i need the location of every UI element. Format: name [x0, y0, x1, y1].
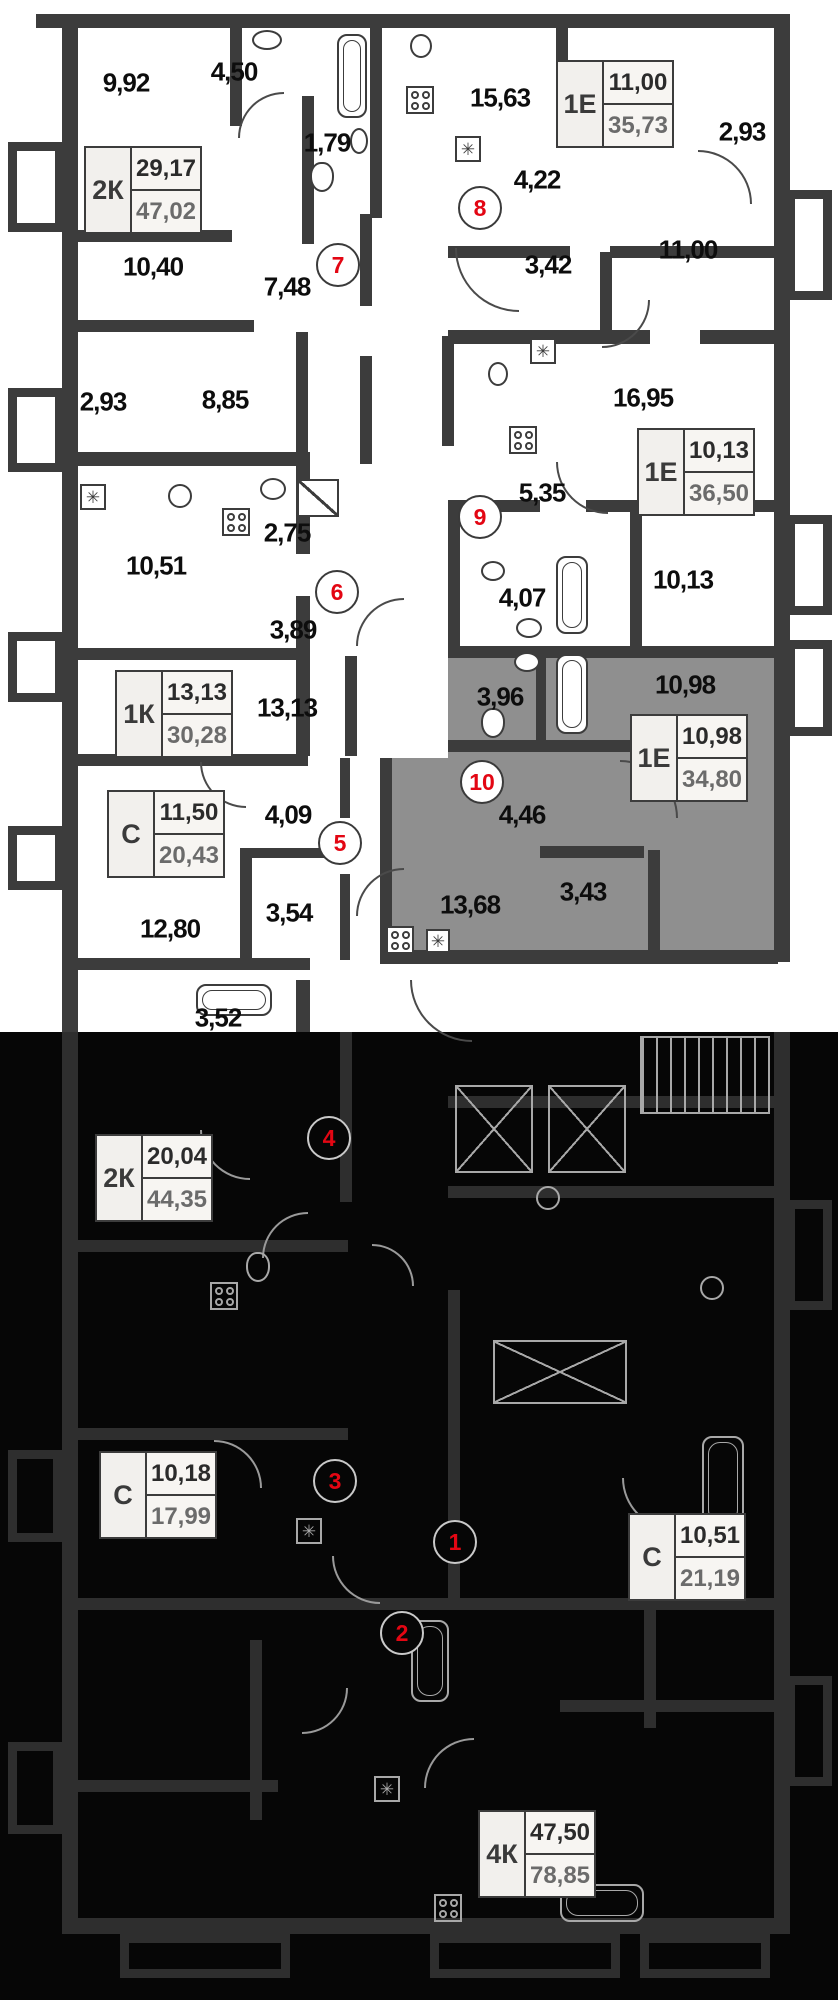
sink-icon — [410, 34, 432, 58]
door-arc-icon — [455, 248, 519, 312]
unit-rooms-area: 10,51 — [676, 1515, 744, 1558]
wall-segment — [36, 14, 790, 28]
washer-icon: ✳ — [296, 1518, 322, 1544]
unit-type-label: 4К — [480, 1812, 526, 1896]
unit-card-1Е-35,73[interactable]: 1Е11,0035,73 — [556, 60, 674, 148]
balcony — [786, 640, 832, 736]
wall-segment — [774, 14, 790, 962]
unit-rooms-area: 47,50 — [526, 1812, 594, 1855]
unit-rooms-area: 11,50 — [155, 792, 223, 835]
door-arc-icon — [698, 150, 752, 204]
entrance-marker-9[interactable]: 9 — [458, 495, 502, 539]
room-area-label: 4,22 — [514, 165, 561, 196]
balcony — [430, 1934, 620, 1978]
room-area-label: 10,13 — [653, 565, 713, 596]
sink-icon — [252, 30, 282, 50]
balcony — [8, 632, 64, 702]
unit-rooms-area: 11,00 — [604, 62, 672, 105]
toilet-icon — [481, 708, 505, 738]
unit-rooms-area: 10,18 — [147, 1453, 215, 1496]
room-area-label: 3,89 — [270, 615, 317, 646]
entrance-marker-6[interactable]: 6 — [315, 570, 359, 614]
unit-areas: 10,9834,80 — [678, 716, 746, 800]
stove-icon — [509, 426, 537, 454]
elevator-icon — [455, 1085, 533, 1173]
balcony — [8, 826, 64, 890]
wall-segment — [648, 850, 660, 952]
sink-icon — [700, 1276, 724, 1300]
unit-total-area: 34,80 — [678, 759, 746, 800]
wall-segment — [630, 512, 642, 648]
sink-icon — [488, 362, 508, 386]
unit-areas: 10,1336,50 — [685, 430, 753, 514]
wall-segment — [340, 1032, 352, 1202]
unit-areas: 11,5020,43 — [155, 792, 223, 876]
room-area-label: 3,42 — [525, 250, 572, 281]
unit-rooms-area: 13,13 — [163, 672, 231, 715]
door-arc-icon — [356, 868, 404, 916]
door-arc-icon — [356, 598, 404, 646]
wall-segment — [448, 1186, 778, 1198]
room-area-label: 4,07 — [499, 583, 546, 614]
room-area-label: 13,68 — [440, 890, 500, 921]
wall-segment — [360, 214, 372, 306]
room-area-label: 3,54 — [266, 898, 313, 929]
wall-segment — [448, 512, 460, 648]
unit-areas: 11,0035,73 — [604, 62, 672, 146]
room-area-label: 10,51 — [126, 551, 186, 582]
unit-areas: 10,5121,19 — [676, 1515, 744, 1599]
washer-icon: ✳ — [530, 338, 556, 364]
room-area-label: 3,43 — [560, 877, 607, 908]
sink-icon — [350, 128, 368, 154]
wall-segment — [62, 1032, 78, 1932]
stove-icon — [210, 1282, 238, 1310]
entrance-marker-8[interactable]: 8 — [458, 186, 502, 230]
unit-type-label: 1Е — [558, 62, 604, 146]
room-area-label: 4,50 — [211, 57, 258, 88]
balcony — [640, 1934, 770, 1978]
room-area-label: 15,63 — [470, 83, 530, 114]
wall-segment — [774, 1032, 790, 1932]
unit-card-С-20,43[interactable]: С11,5020,43 — [107, 790, 225, 878]
shower-icon — [297, 479, 339, 517]
wall-segment — [448, 1430, 460, 1598]
unit-rooms-area: 10,13 — [685, 430, 753, 473]
unit-total-area: 78,85 — [526, 1855, 594, 1896]
wall-segment — [370, 28, 382, 218]
unit-total-area: 30,28 — [163, 715, 231, 756]
entrance-marker-4[interactable]: 4 — [307, 1116, 351, 1160]
wall-segment — [340, 758, 350, 818]
unit-type-label: С — [101, 1453, 147, 1537]
unit-card-1Е-34,80[interactable]: 1Е10,9834,80 — [630, 714, 748, 802]
washer-icon: ✳ — [426, 929, 450, 953]
wall-segment — [62, 1918, 790, 1934]
unit-total-area: 21,19 — [676, 1558, 744, 1599]
tub-icon — [556, 654, 588, 734]
unit-areas: 47,5078,85 — [526, 1812, 594, 1896]
wall-segment — [62, 320, 254, 332]
unit-card-С-21,19[interactable]: С10,5121,19 — [628, 1513, 746, 1601]
unit-card-2К-47,02[interactable]: 2К29,1747,02 — [84, 146, 202, 234]
wall-segment — [62, 452, 310, 466]
stairs-icon — [640, 1036, 770, 1114]
unit-card-1Е-36,50[interactable]: 1Е10,1336,50 — [637, 428, 755, 516]
washer-icon: ✳ — [455, 136, 481, 162]
room-area-label: 8,85 — [202, 385, 249, 416]
unit-rooms-area: 10,98 — [678, 716, 746, 759]
wall-segment — [78, 958, 310, 970]
unit-rooms-area: 29,17 — [132, 148, 200, 191]
balcony — [786, 190, 832, 300]
unit-areas: 20,0444,35 — [143, 1136, 211, 1220]
wall-segment — [78, 1780, 278, 1792]
entrance-marker-2[interactable]: 2 — [380, 1611, 424, 1655]
room-area-label: 2,93 — [80, 387, 127, 418]
balcony — [8, 1742, 62, 1834]
unit-type-label: С — [630, 1515, 676, 1599]
unit-rooms-area: 20,04 — [143, 1136, 211, 1179]
sink-icon — [168, 484, 192, 508]
room-area-label-boundary: 3,52 — [195, 1003, 242, 1034]
unit-total-area: 20,43 — [155, 835, 223, 876]
wall-segment — [250, 1640, 262, 1820]
stove-icon — [386, 926, 414, 954]
unit-areas: 29,1747,02 — [132, 148, 200, 232]
tub-icon — [556, 556, 588, 634]
wall-segment — [700, 330, 774, 344]
wall-segment — [644, 1598, 656, 1728]
toilet-icon — [246, 1252, 270, 1282]
sink-icon — [481, 561, 505, 581]
door-arc-icon — [238, 92, 284, 138]
wall-segment — [62, 14, 78, 1032]
wall-segment — [360, 356, 372, 464]
bed-icon — [493, 1340, 627, 1404]
tub-icon — [337, 34, 367, 118]
room-area-label: 13,13 — [257, 693, 317, 724]
room-area-label: 11,00 — [659, 235, 718, 266]
washer-icon: ✳ — [374, 1776, 400, 1802]
balcony — [8, 142, 64, 232]
stove-icon — [222, 508, 250, 536]
entrance-marker-5[interactable]: 5 — [318, 821, 362, 865]
wall-segment — [78, 648, 308, 660]
unit-type-label: 2К — [86, 148, 132, 232]
unit-card-4К-78,85[interactable]: 4К47,5078,85 — [478, 1810, 596, 1898]
unit-card-1К-30,28[interactable]: 1К13,1330,28 — [115, 670, 233, 758]
floor-plan: 3,52 ✳✳✳✳✳✳9,924,5015,632,931,794,2211,0… — [0, 0, 838, 2000]
room-area-label: 9,92 — [103, 68, 150, 99]
unit-type-label: 1Е — [639, 430, 685, 514]
wall-segment — [296, 332, 308, 464]
wall-segment — [442, 336, 454, 446]
unit-card-2К-44,35[interactable]: 2К20,0444,35 — [95, 1134, 213, 1222]
room-area-label: 10,40 — [123, 252, 183, 283]
wall-segment — [78, 1428, 348, 1440]
unit-total-area: 36,50 — [685, 473, 753, 514]
balcony — [8, 1450, 62, 1542]
sink-icon — [514, 652, 540, 672]
entrance-marker-1[interactable]: 1 — [433, 1520, 477, 1564]
room-area-label: 7,48 — [264, 272, 311, 303]
balcony — [120, 1934, 290, 1978]
unit-total-area: 35,73 — [604, 105, 672, 146]
entrance-marker-3[interactable]: 3 — [313, 1459, 357, 1503]
wall-segment — [296, 980, 310, 1032]
elevator-icon — [548, 1085, 626, 1173]
unit-type-label: 2К — [97, 1136, 143, 1220]
unit-areas: 10,1817,99 — [147, 1453, 215, 1537]
wall-segment — [448, 1290, 460, 1440]
room-area-label: 4,09 — [265, 800, 312, 831]
washer-icon: ✳ — [80, 484, 106, 510]
entrance-marker-10[interactable]: 10 — [460, 760, 504, 804]
stove-icon — [434, 1894, 462, 1922]
room-area-label: 1,79 — [304, 128, 351, 159]
balcony — [786, 515, 832, 615]
wall-segment — [345, 656, 357, 756]
wall-segment — [540, 846, 644, 858]
room-area-label: 5,35 — [519, 478, 566, 509]
unit-areas: 13,1330,28 — [163, 672, 231, 756]
wall-segment — [240, 852, 252, 958]
unit-total-area: 44,35 — [143, 1179, 211, 1220]
balcony — [786, 1676, 832, 1786]
room-area-label: 2,75 — [264, 518, 311, 549]
unit-type-label: 1Е — [632, 716, 678, 800]
room-area-label: 10,98 — [655, 670, 715, 701]
entrance-marker-7[interactable]: 7 — [316, 243, 360, 287]
room-area-label: 4,46 — [499, 800, 546, 831]
sink-icon — [516, 618, 542, 638]
unit-total-area: 47,02 — [132, 191, 200, 232]
unit-type-label: С — [109, 792, 155, 876]
wall-segment — [536, 658, 546, 742]
room-area-label: 3,96 — [477, 682, 524, 713]
sink-icon — [260, 478, 286, 500]
wall-segment — [448, 740, 650, 752]
wall-segment — [448, 646, 774, 658]
balcony — [786, 1200, 832, 1310]
room-area-label: 12,80 — [140, 914, 200, 945]
stove-icon — [406, 86, 434, 114]
room-area-label: 2,93 — [719, 117, 766, 148]
unit-type-label: 1К — [117, 672, 163, 756]
sink-icon — [536, 1186, 560, 1210]
wall-segment — [340, 874, 350, 960]
wall-segment — [560, 1700, 780, 1712]
unit-card-С-17,99[interactable]: С10,1817,99 — [99, 1451, 217, 1539]
toilet-icon — [310, 162, 334, 192]
room-area-label: 16,95 — [613, 383, 673, 414]
balcony — [8, 388, 64, 472]
unit-total-area: 17,99 — [147, 1496, 215, 1537]
